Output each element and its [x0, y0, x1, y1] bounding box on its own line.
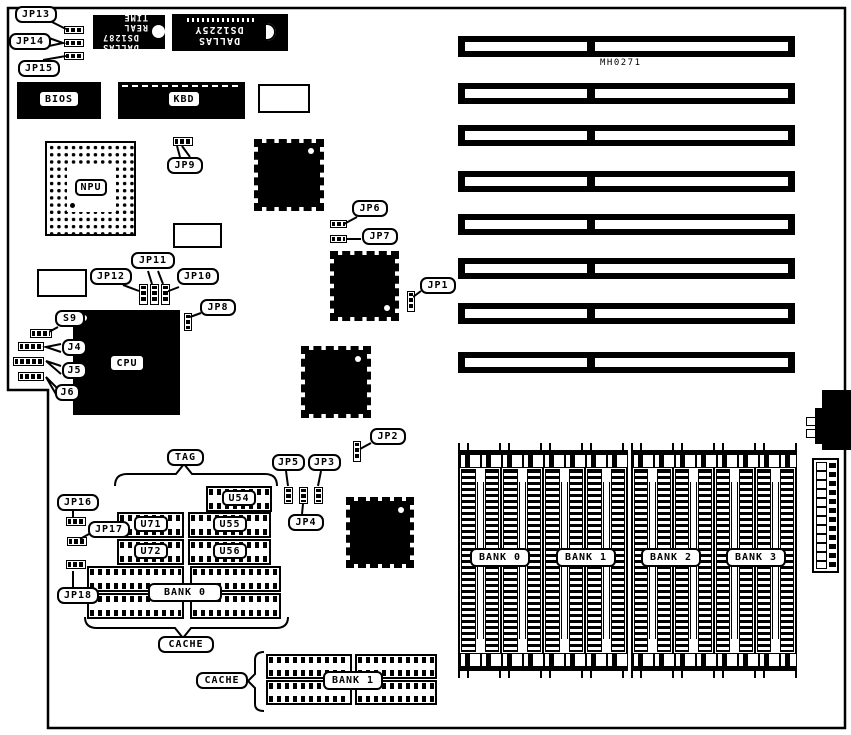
- u71-label: U71: [134, 516, 168, 532]
- board-code: MH0271: [600, 58, 680, 68]
- callout-cache-bank0: CACHE: [158, 636, 214, 653]
- cpu-label: CPU: [109, 354, 145, 372]
- jumper-jp6: [330, 220, 347, 228]
- jumper-jp17: [67, 537, 87, 546]
- callout-jp18: JP18: [57, 587, 99, 604]
- simm-latch-row: [458, 653, 628, 667]
- jumper-jp4: [299, 487, 308, 504]
- jumper-jp14: [64, 39, 84, 47]
- callout-jp12: JP12: [90, 268, 132, 285]
- callout-jp2: JP2: [370, 428, 406, 445]
- callout-jp13: JP13: [15, 6, 57, 23]
- callout-jp1: JP1: [420, 277, 456, 294]
- nvram-datecode-marks: [184, 19, 254, 23]
- jumper-j5: [13, 357, 44, 366]
- empty-socket: [258, 84, 310, 113]
- simm-bank1-label: BANK 1: [556, 548, 616, 567]
- simm-bank0-label: BANK 0: [470, 548, 530, 567]
- simm-tabs: [458, 443, 628, 450]
- isa-slot: [458, 214, 795, 235]
- rtc-subtitle: REAL TIME: [93, 15, 148, 32]
- isa-slot: [458, 125, 795, 146]
- callout-jp14: JP14: [9, 33, 51, 50]
- callout-s9: S9: [55, 310, 85, 327]
- simm-tabs: [631, 443, 797, 450]
- rtc-brand: DALLAS: [102, 42, 139, 49]
- isa-slot: [458, 303, 795, 324]
- keyboard-connector: [822, 444, 851, 450]
- simm-tabs: [458, 671, 628, 678]
- simm-latch-row: [631, 653, 797, 667]
- bios-label: BIOS: [38, 90, 80, 108]
- oscillator-2: [37, 269, 87, 297]
- isa-slot: [458, 171, 795, 192]
- oscillator-1: [173, 223, 222, 248]
- jumper-jp1: [407, 291, 415, 312]
- simm-tabs: [631, 671, 797, 678]
- jumper-s9: [30, 329, 52, 338]
- callout-jp17: JP17: [88, 521, 130, 538]
- jumper-jp12: [139, 284, 148, 305]
- jumper-jp18: [66, 560, 86, 569]
- callout-jp8: JP8: [200, 299, 236, 316]
- simm-bank3-label: BANK 3: [726, 548, 786, 567]
- jumper-jp2: [353, 441, 361, 462]
- callout-j5: J5: [62, 362, 87, 379]
- isa-slot: [458, 36, 795, 57]
- tag-brace: [115, 464, 277, 486]
- callout-jp15: JP15: [18, 60, 60, 77]
- callout-jp4: JP4: [288, 514, 324, 531]
- jumper-jp5: [284, 487, 293, 504]
- kbd-socket-mark: [122, 85, 241, 87]
- cache-bank1-brace: [248, 652, 264, 711]
- nvram-chip-ds1225y: DALLAS DS1225Y: [172, 14, 288, 51]
- npu-label: NPU: [75, 179, 107, 196]
- callout-jp9: JP9: [167, 157, 203, 174]
- power-pin-column: [816, 462, 827, 569]
- u72-label: U72: [134, 543, 168, 559]
- rtc-chip-ds1287: DALLAS DS1287 REAL TIME: [93, 15, 165, 49]
- jumper-jp9: [173, 137, 193, 146]
- cache-bank0-label: BANK 0: [148, 583, 222, 602]
- kbd-label: KBD: [167, 90, 201, 108]
- kbd-conn-pin: [806, 429, 816, 438]
- jumper-jp11: [150, 284, 159, 305]
- callout-tag: TAG: [167, 449, 204, 466]
- callout-jp5: JP5: [272, 454, 305, 471]
- callout-jp11: JP11: [131, 252, 175, 269]
- jumper-jp3: [314, 487, 323, 504]
- power-pin-column: [829, 463, 836, 568]
- power-connector: [812, 458, 839, 573]
- simm-bank2-label: BANK 2: [641, 548, 701, 567]
- callout-j4: J4: [62, 339, 87, 356]
- callout-cache-bank1: CACHE: [196, 672, 248, 689]
- callout-j6: J6: [55, 384, 80, 401]
- isa-slot: [458, 352, 795, 373]
- jumper-jp10: [161, 284, 170, 305]
- u55-label: U55: [213, 516, 247, 532]
- jumper-jp15: [64, 52, 84, 60]
- motherboard-diagram: JP13 JP14 JP15 DALLAS DS1287 REAL TIME D…: [0, 0, 851, 735]
- npu-pin1-dot: [70, 203, 75, 208]
- keyboard-connector: [822, 390, 851, 410]
- callout-jp6: JP6: [352, 200, 388, 217]
- jumper-j6: [18, 372, 44, 381]
- jumper-jp16: [66, 517, 86, 526]
- isa-slot: [458, 258, 795, 279]
- callout-jp3: JP3: [308, 454, 341, 471]
- u56-label: U56: [213, 543, 247, 559]
- qfp4-pin1-dot: [398, 507, 404, 513]
- jumper-jp7: [330, 235, 347, 243]
- callout-jp16: JP16: [57, 494, 99, 511]
- simm-latch-row: [458, 454, 628, 468]
- jumper-jp8: [184, 313, 192, 331]
- keyboard-connector: [815, 408, 851, 444]
- cache-bank0-brace: [85, 617, 288, 638]
- callout-jp7: JP7: [362, 228, 398, 245]
- jumper-jp13: [64, 26, 84, 34]
- qfp3-pin1-dot: [355, 356, 361, 362]
- dallas-logo-icon: [152, 26, 165, 39]
- kbd-conn-pin: [806, 417, 816, 426]
- callout-jp10: JP10: [177, 268, 219, 285]
- cache-bank1-label: BANK 1: [323, 671, 383, 690]
- nvram-brand: DALLAS: [198, 36, 240, 47]
- qfp2-pin1-dot: [384, 305, 390, 311]
- simm-latch-row: [631, 454, 797, 468]
- nvram-part: DS1225Y: [194, 25, 243, 36]
- rtc-part: DS1287: [102, 32, 139, 42]
- isa-slot: [458, 83, 795, 104]
- jumper-j4: [18, 342, 44, 351]
- dallas-clock-logo-icon: [258, 24, 276, 42]
- qfp1-pin1-dot: [308, 148, 314, 154]
- u54-label: U54: [222, 490, 256, 506]
